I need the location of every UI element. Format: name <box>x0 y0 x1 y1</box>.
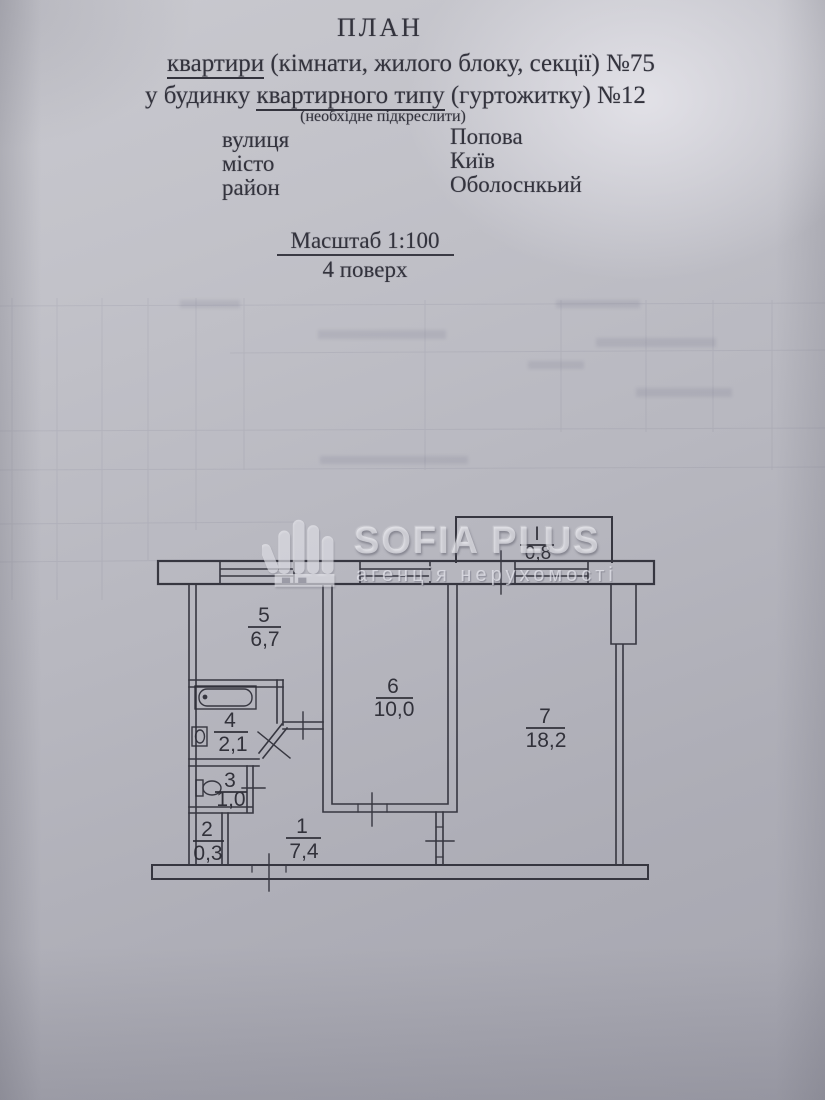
exterior-wall-right <box>611 584 636 865</box>
room6-number: 6 <box>387 675 399 698</box>
balcony-number: І <box>534 524 539 545</box>
room7-area: 18,2 <box>526 729 567 752</box>
window-room6 <box>360 561 430 584</box>
label-balcony: І 0,8 <box>520 524 554 564</box>
exterior-wall-bottom <box>152 865 648 879</box>
room2-area: 0,3 <box>193 842 222 865</box>
room7-number: 7 <box>539 705 551 728</box>
room-labels: І 0,8 5 6,7 6 10,0 7 18,2 4 <box>193 524 566 865</box>
bathtub <box>195 686 256 709</box>
window-room7 <box>515 561 588 584</box>
room4-area: 2,1 <box>218 733 247 756</box>
exterior-wall-top <box>158 561 654 584</box>
bath-wc-wall <box>189 759 259 766</box>
sink <box>192 727 207 746</box>
room3-area: 1,0 <box>216 788 245 811</box>
scanned-document-page: ПЛАН квартири (кімнати, жилого блоку, се… <box>0 0 825 1100</box>
balcony-area: 0,8 <box>525 543 551 564</box>
label-room6: 6 10,0 <box>374 675 415 721</box>
label-room7: 7 18,2 <box>526 705 567 752</box>
label-room5: 5 6,7 <box>248 604 281 651</box>
room2-number: 2 <box>201 818 213 841</box>
label-room1: 1 7,4 <box>286 815 321 863</box>
window-kitchen <box>220 561 294 584</box>
room1-area: 7,4 <box>289 840 319 863</box>
room1-number: 1 <box>296 815 308 838</box>
label-room4: 4 2,1 <box>214 709 248 756</box>
closet-wall <box>222 813 228 865</box>
room4-number: 4 <box>224 709 236 732</box>
label-room2: 2 0,3 <box>193 818 224 865</box>
room5-number: 5 <box>258 604 270 627</box>
hall-wall-joints <box>436 827 443 857</box>
label-room3: 3 1,0 <box>215 769 247 811</box>
room6-area: 10,0 <box>374 698 415 721</box>
floor-plan: І 0,8 5 6,7 6 10,0 7 18,2 4 <box>0 0 825 1100</box>
bathroom-door-leaf <box>258 732 290 758</box>
room5-area: 6,7 <box>250 628 279 651</box>
exterior-wall-left <box>189 584 196 865</box>
